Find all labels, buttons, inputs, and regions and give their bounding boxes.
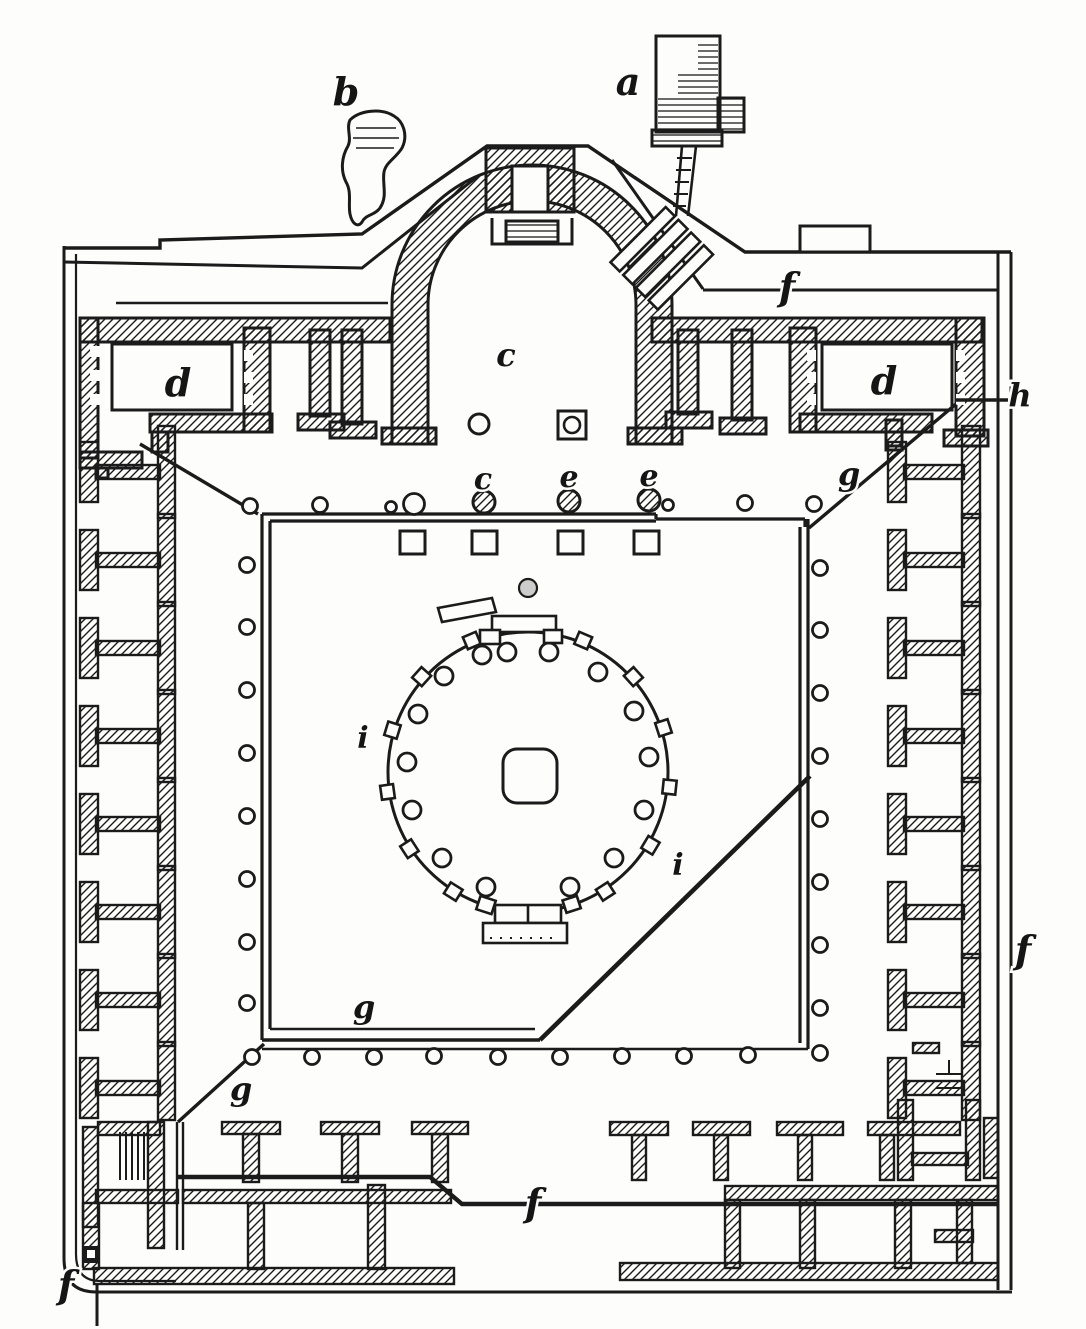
stairs-bottom-left <box>120 1132 144 1180</box>
shops-bottom-left <box>83 1122 468 1284</box>
label-g-courtyard: g <box>353 988 375 1026</box>
label-h: h <box>1008 376 1031 414</box>
label-f-corner: f <box>55 1262 80 1307</box>
structure-a <box>652 36 744 216</box>
rock-b <box>342 111 404 225</box>
shops-left <box>80 426 175 1120</box>
label-g-top-right: g <box>838 455 860 493</box>
label-d-right: d <box>871 358 898 403</box>
shops-right <box>888 426 980 1120</box>
label-i-left: i <box>357 721 368 756</box>
floor-plan: a b c d d c e e f f f f g g g h i i <box>0 0 1086 1329</box>
label-c-apse: c <box>496 336 515 374</box>
shaded-base <box>519 579 537 597</box>
label-e-2: e <box>639 459 658 494</box>
engraving-page: a b c d d c e e f f f f g g g h i i <box>0 0 1086 1329</box>
label-e-1: e <box>559 460 578 495</box>
label-c-row: c <box>474 462 492 497</box>
apse-niche <box>512 166 548 212</box>
apse <box>382 148 682 444</box>
label-b: b <box>333 69 360 114</box>
label-f-right: f <box>1012 927 1037 972</box>
tholos-porch-north <box>438 598 562 644</box>
plinth-squares <box>400 531 659 554</box>
label-d-left: d <box>165 360 192 405</box>
tholos <box>380 598 677 943</box>
label-a: a <box>616 59 641 104</box>
pedestals <box>469 411 586 439</box>
label-i-right: i <box>672 848 683 883</box>
label-g-below: g <box>230 1070 252 1108</box>
altar <box>492 218 572 244</box>
corridor-f <box>800 226 870 252</box>
shops-bottom-right <box>610 1100 998 1280</box>
tholos-basin <box>503 749 557 803</box>
label-f-top: f <box>776 264 801 309</box>
